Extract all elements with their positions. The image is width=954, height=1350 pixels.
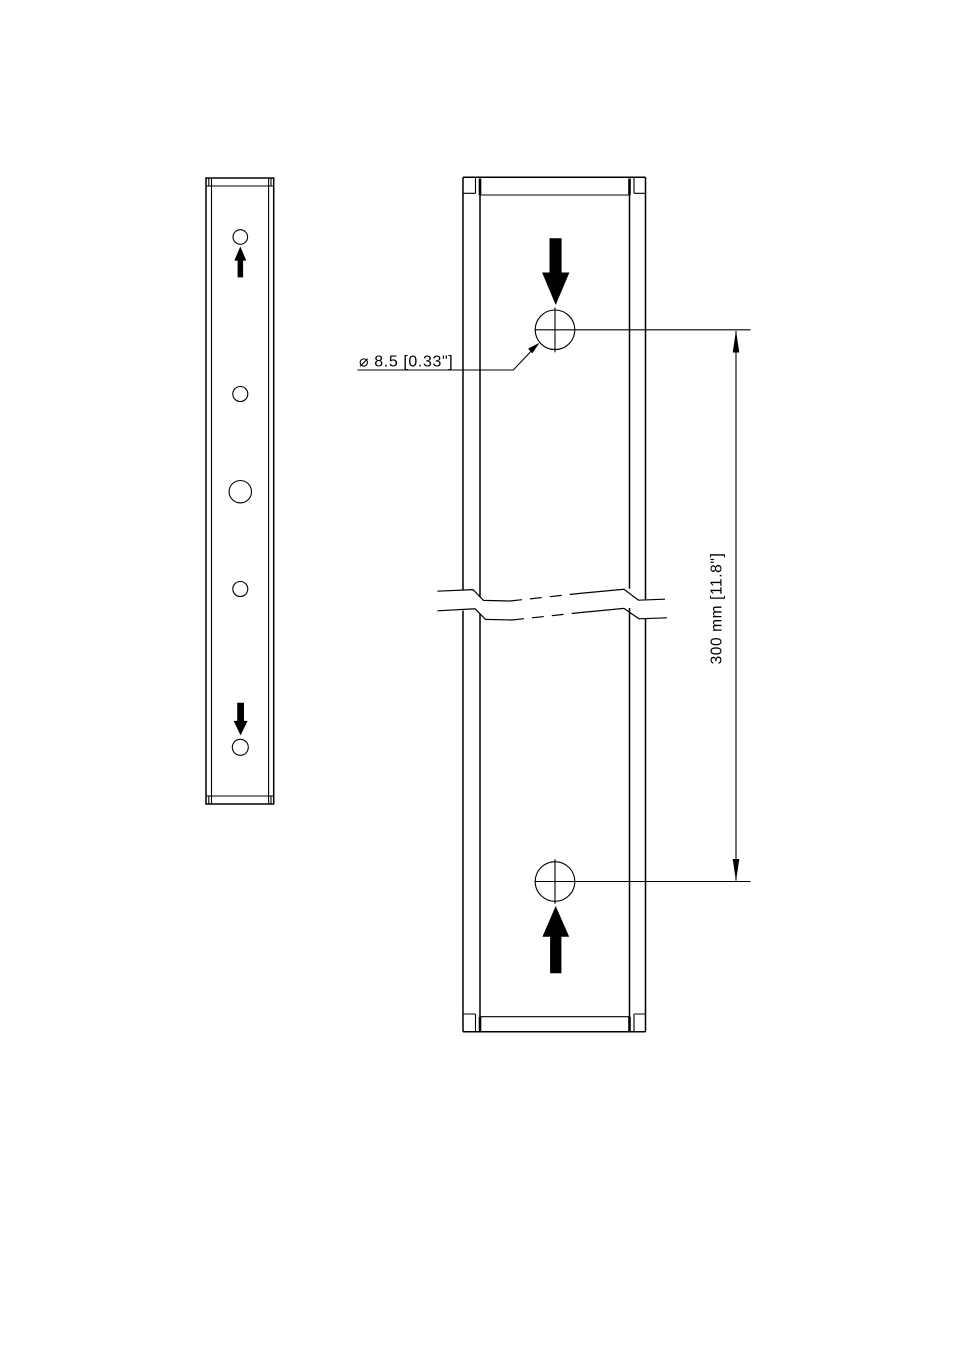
side-view-hole-5 bbox=[232, 739, 248, 755]
annotations: ⌀ 8.5 [0.33"] 300 mm [11.8"] bbox=[358, 330, 751, 882]
front-view-bottom-cap-tabs bbox=[480, 1017, 630, 1031]
front-view-top-cap-tabs bbox=[480, 179, 630, 196]
spacing-label: 300 mm [11.8"] bbox=[709, 553, 726, 665]
break-line-lower-dashed bbox=[512, 613, 581, 621]
down-arrow-icon bbox=[542, 238, 569, 305]
front-view bbox=[438, 177, 668, 1031]
side-view-hole-1 bbox=[233, 230, 248, 245]
side-view-hole-4 bbox=[233, 582, 248, 597]
document-page: ⌀ 8.5 [0.33"] 300 mm [11.8"] bbox=[0, 0, 954, 1350]
down-arrow-icon bbox=[234, 703, 248, 736]
dimension-arrowhead-down-icon bbox=[733, 859, 740, 881]
up-arrow-icon bbox=[234, 247, 246, 278]
dimension-arrowhead-up-icon bbox=[733, 330, 740, 352]
break-line-upper-dashed bbox=[510, 593, 580, 601]
break-line-upper bbox=[438, 590, 511, 601]
side-view-hole-2 bbox=[233, 387, 248, 402]
front-view-bottom-cap bbox=[463, 1014, 646, 1032]
diameter-label: ⌀ 8.5 [0.33"] bbox=[359, 354, 453, 371]
side-view-hole-3 bbox=[229, 481, 251, 503]
break-line-lower bbox=[438, 609, 513, 620]
side-view bbox=[206, 178, 274, 804]
front-view-top-cap bbox=[463, 177, 646, 195]
break-line-lower-right bbox=[581, 608, 667, 618]
technical-drawing-canvas: ⌀ 8.5 [0.33"] 300 mm [11.8"] bbox=[0, 0, 954, 1350]
break-line-upper-right bbox=[580, 589, 665, 600]
up-arrow-icon bbox=[542, 906, 569, 973]
